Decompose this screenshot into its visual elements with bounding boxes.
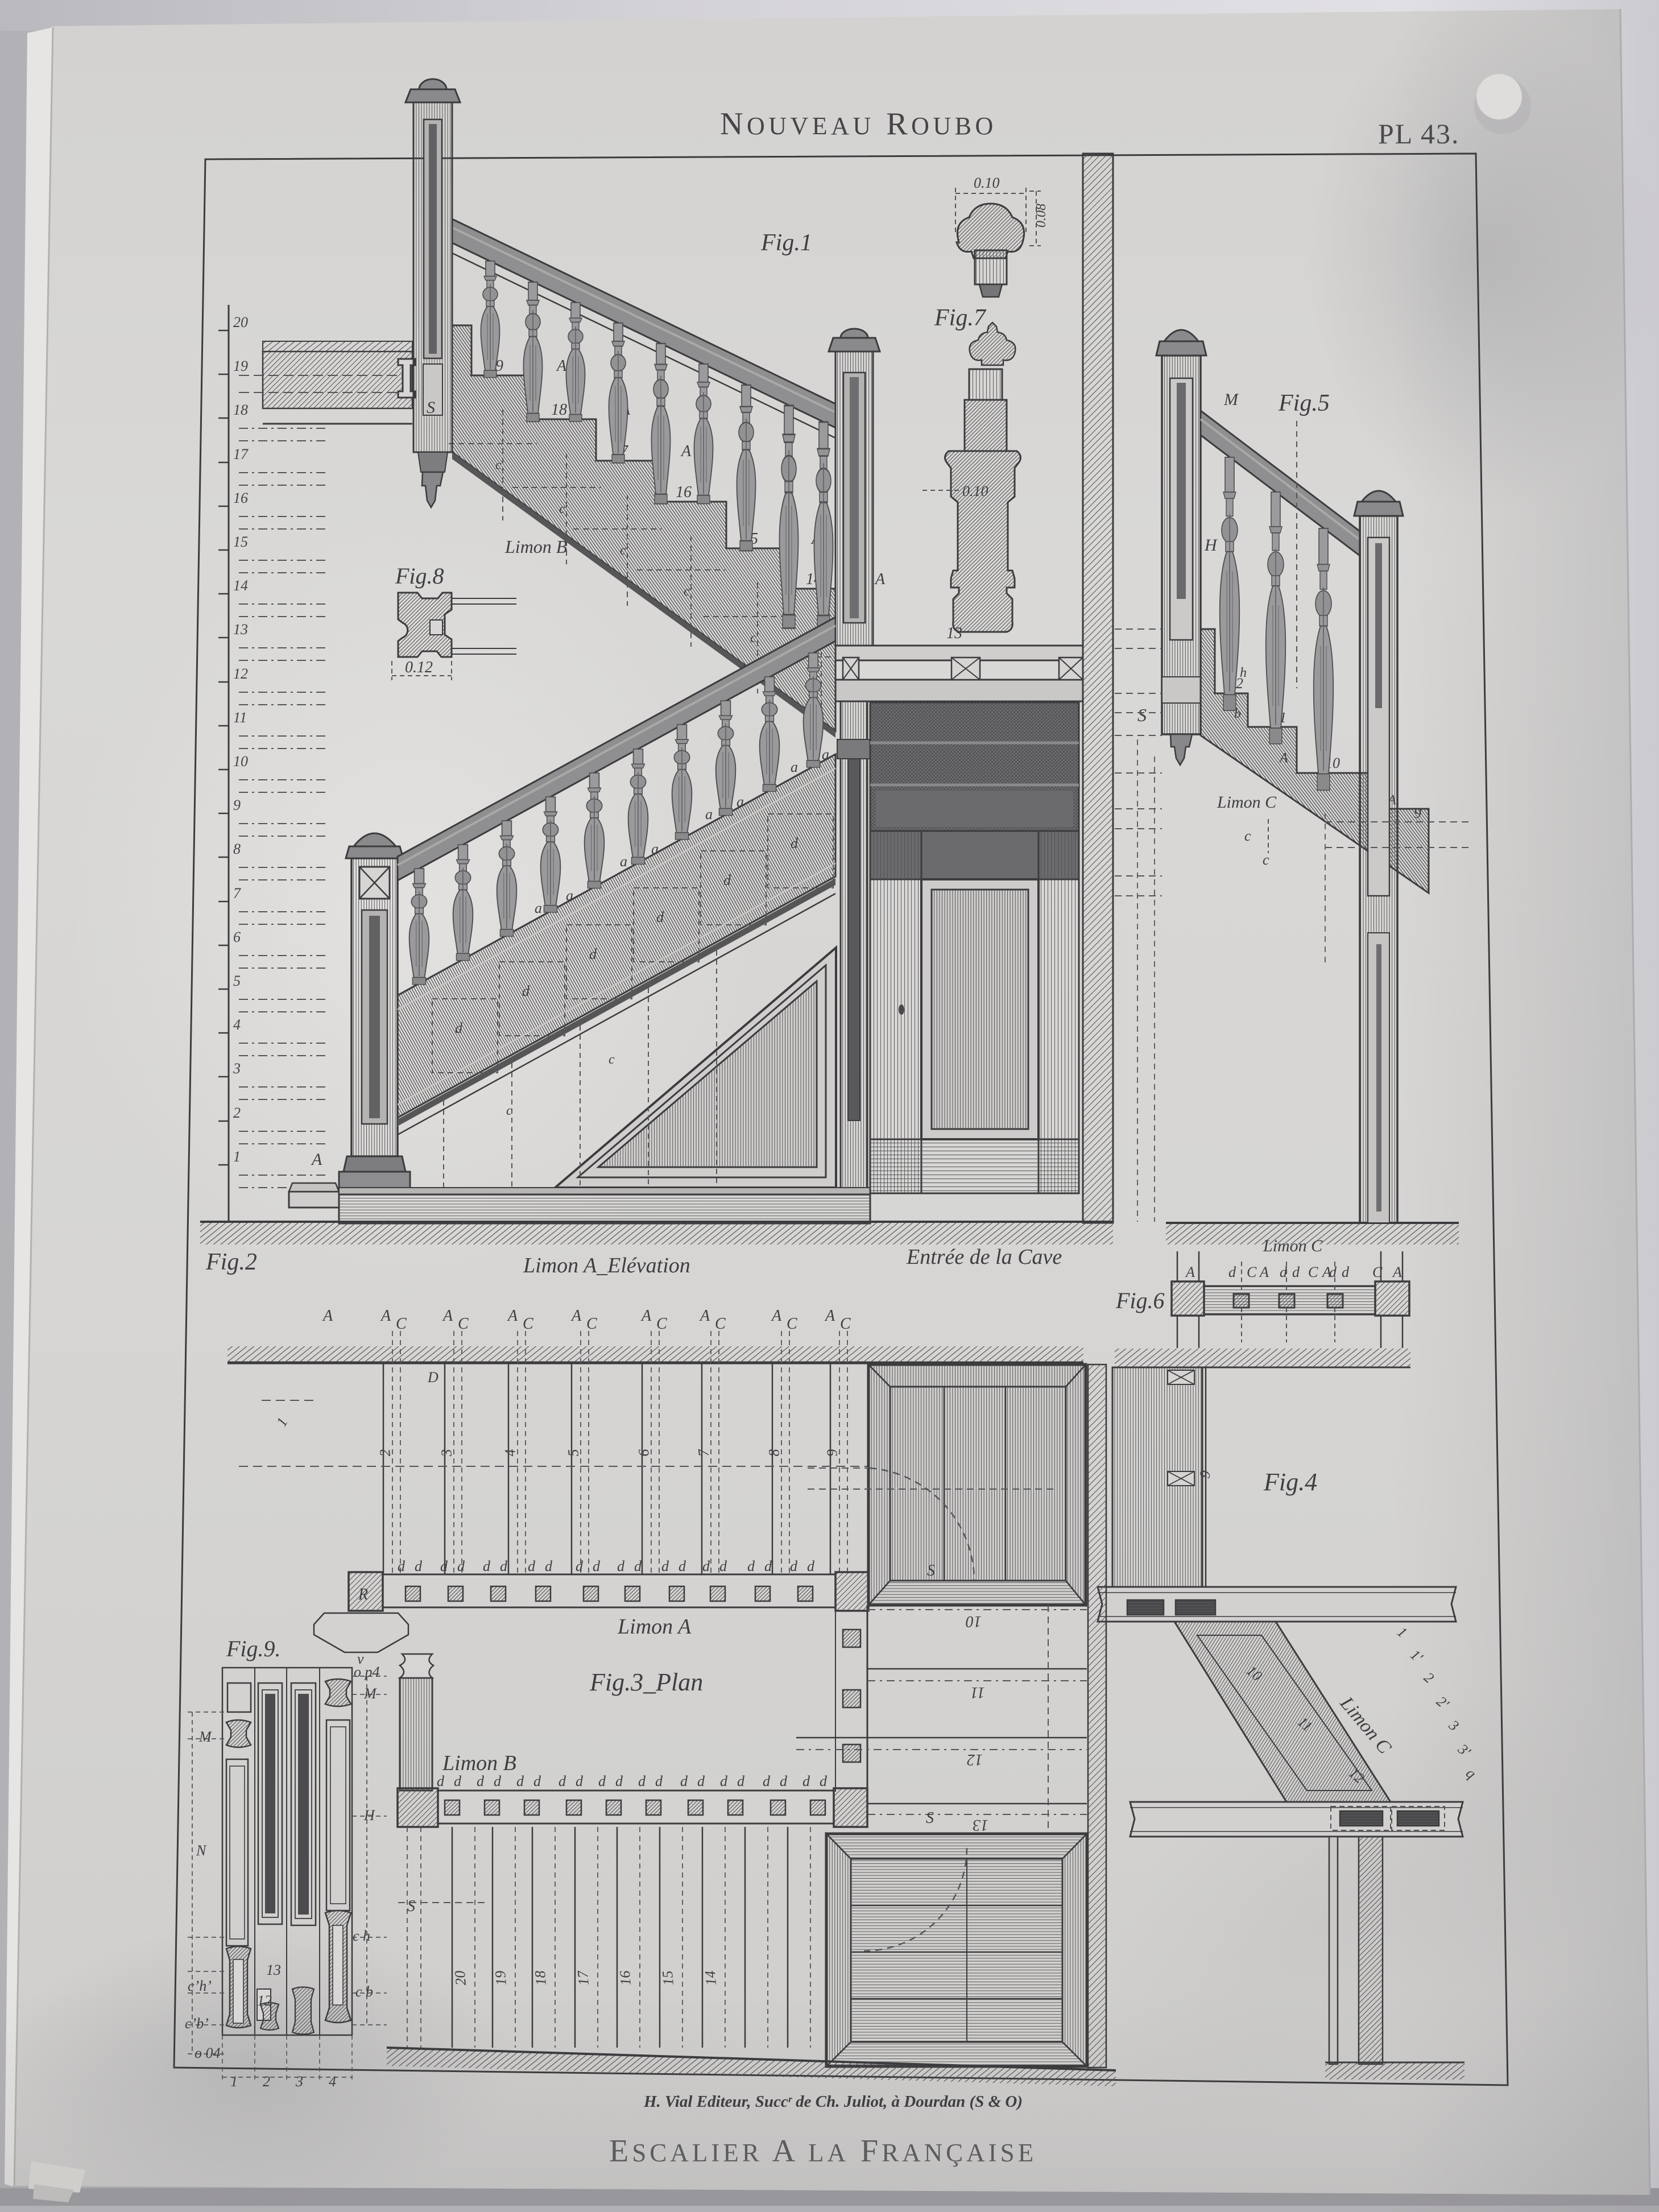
svg-text:d: d xyxy=(1228,1264,1236,1280)
svg-text:N: N xyxy=(196,1842,207,1859)
svg-text:Fig.3_Plan: Fig.3_Plan xyxy=(589,1668,703,1696)
svg-text:M: M xyxy=(363,1685,377,1702)
svg-text:13: 13 xyxy=(233,621,248,638)
svg-text:d: d xyxy=(589,946,597,962)
svg-text:c: c xyxy=(506,1103,512,1118)
svg-text:A: A xyxy=(874,570,886,588)
svg-text:ESCALIER A LA FRANÇAISE: ESCALIER A LA FRANÇAISE xyxy=(609,2134,1037,2169)
svg-text:A: A xyxy=(556,357,567,375)
svg-text:A: A xyxy=(680,443,692,460)
svg-text:Fig.6: Fig.6 xyxy=(1115,1288,1165,1313)
svg-text:4: 4 xyxy=(329,2073,336,2090)
svg-text:d: d xyxy=(680,1773,688,1789)
svg-text:A: A xyxy=(1392,1264,1402,1280)
svg-text:d: d xyxy=(747,1558,755,1574)
svg-text:Limon B: Limon B xyxy=(504,536,567,557)
svg-text:6: 6 xyxy=(635,1449,652,1457)
svg-text:A: A xyxy=(1259,1264,1269,1280)
svg-text:18: 18 xyxy=(233,402,248,418)
svg-text:c: c xyxy=(1263,851,1269,868)
svg-text:h: h xyxy=(1240,665,1247,680)
svg-text:d: d xyxy=(661,1558,669,1574)
svg-text:d: d xyxy=(415,1558,423,1574)
svg-text:Entrée de la Cave: Entrée de la Cave xyxy=(906,1245,1062,1269)
svg-text:d: d xyxy=(558,1773,566,1789)
svg-text:C: C xyxy=(787,1315,797,1333)
svg-text:14: 14 xyxy=(233,577,248,594)
svg-text:C: C xyxy=(840,1315,851,1333)
svg-text:C: C xyxy=(1308,1264,1318,1280)
svg-text:o p4: o p4 xyxy=(354,1664,380,1680)
svg-text:d: d xyxy=(634,1558,642,1574)
svg-text:d: d xyxy=(593,1558,601,1574)
svg-text:Fig.1: Fig.1 xyxy=(760,230,812,256)
svg-text:c’h’: c’h’ xyxy=(188,1978,212,1994)
svg-text:d: d xyxy=(545,1558,553,1574)
svg-text:d: d xyxy=(533,1773,541,1789)
svg-text:d: d xyxy=(1329,1264,1337,1280)
svg-text:S: S xyxy=(1137,705,1147,725)
svg-text:1: 1 xyxy=(233,1148,241,1165)
svg-text:d: d xyxy=(638,1773,646,1789)
svg-text:5: 5 xyxy=(233,973,241,989)
svg-text:Limon C: Limon C xyxy=(1217,793,1277,812)
svg-text:c h: c h xyxy=(353,1928,370,1944)
svg-text:18: 18 xyxy=(551,401,567,419)
svg-text:Limon A: Limon A xyxy=(617,1615,692,1639)
svg-text:15: 15 xyxy=(659,1970,677,1986)
svg-text:d: d xyxy=(1342,1264,1350,1280)
svg-text:2: 2 xyxy=(263,2073,270,2090)
svg-text:A: A xyxy=(380,1307,391,1325)
svg-text:d: d xyxy=(528,1558,536,1574)
svg-text:d: d xyxy=(477,1773,485,1789)
svg-text:D: D xyxy=(427,1369,438,1386)
svg-text:4: 4 xyxy=(233,1016,241,1033)
svg-text:20: 20 xyxy=(452,1970,469,1986)
svg-text:17: 17 xyxy=(574,1970,592,1986)
svg-text:d: d xyxy=(780,1773,788,1789)
svg-text:A: A xyxy=(570,1307,582,1325)
svg-text:9: 9 xyxy=(824,1449,841,1457)
svg-text:0.08: 0.08 xyxy=(1034,204,1049,228)
svg-text:8: 8 xyxy=(766,1449,783,1457)
svg-text:Fig.9.: Fig.9. xyxy=(226,1636,281,1661)
svg-text:S: S xyxy=(407,1897,415,1915)
svg-text:d: d xyxy=(820,1773,828,1789)
svg-text:14: 14 xyxy=(702,1970,719,1986)
svg-text:o 04: o 04 xyxy=(195,2045,221,2061)
svg-text:M: M xyxy=(198,1729,212,1745)
svg-text:NOUVEAU ROUBO: NOUVEAU ROUBO xyxy=(720,106,997,142)
svg-text:9: 9 xyxy=(233,797,241,813)
svg-text:d: d xyxy=(483,1558,491,1574)
svg-text:C: C xyxy=(1372,1264,1383,1280)
svg-text:0.10: 0.10 xyxy=(974,175,1000,191)
svg-text:a: a xyxy=(705,806,713,822)
svg-text:S: S xyxy=(927,1562,935,1580)
svg-text:C: C xyxy=(1247,1264,1257,1280)
svg-text:d: d xyxy=(437,1773,445,1789)
svg-text:20: 20 xyxy=(233,314,248,330)
svg-text:d: d xyxy=(455,1020,463,1036)
svg-text:d: d xyxy=(454,1773,462,1789)
svg-text:PL 43.: PL 43. xyxy=(1378,118,1460,150)
svg-text:R: R xyxy=(358,1586,368,1603)
svg-text:c: c xyxy=(495,458,502,473)
svg-text:d: d xyxy=(500,1558,508,1574)
svg-text:d: d xyxy=(807,1558,815,1574)
svg-text:d: d xyxy=(457,1558,465,1574)
svg-text:d: d xyxy=(764,1558,772,1574)
svg-text:d: d xyxy=(719,1558,727,1574)
svg-text:d: d xyxy=(398,1558,406,1574)
svg-text:c: c xyxy=(750,631,756,646)
svg-text:d: d xyxy=(791,835,799,851)
svg-text:c: c xyxy=(1244,828,1251,844)
svg-text:d: d xyxy=(763,1773,771,1789)
svg-text:C: C xyxy=(458,1315,469,1333)
svg-text:2: 2 xyxy=(377,1449,394,1457)
svg-text:d: d xyxy=(697,1773,705,1789)
svg-text:A: A xyxy=(1185,1264,1195,1280)
svg-text:d: d xyxy=(617,1558,625,1574)
svg-text:d: d xyxy=(494,1773,502,1789)
svg-text:C: C xyxy=(715,1315,726,1333)
svg-text:c: c xyxy=(620,543,626,558)
svg-text:S: S xyxy=(427,398,435,417)
svg-text:A: A xyxy=(699,1307,710,1325)
svg-text:a: a xyxy=(651,841,659,857)
svg-text:12: 12 xyxy=(257,1992,272,2009)
svg-text:d: d xyxy=(679,1558,686,1574)
svg-text:4: 4 xyxy=(502,1449,519,1457)
svg-text:A: A xyxy=(1279,751,1288,766)
svg-text:Limon C: Limon C xyxy=(1263,1237,1323,1255)
svg-text:Limon B: Limon B xyxy=(442,1751,516,1775)
svg-text:17: 17 xyxy=(233,446,249,462)
svg-text:c: c xyxy=(559,502,565,516)
svg-text:d: d xyxy=(440,1558,448,1574)
svg-text:15: 15 xyxy=(233,534,248,550)
svg-text:2: 2 xyxy=(233,1105,241,1121)
svg-text:c’b’: c’b’ xyxy=(185,2015,209,2032)
svg-text:Fig.8: Fig.8 xyxy=(395,563,444,589)
svg-text:d: d xyxy=(702,1558,710,1574)
svg-text:A: A xyxy=(322,1307,333,1325)
svg-text:c: c xyxy=(609,1052,615,1067)
svg-text:Fig.5: Fig.5 xyxy=(1278,390,1330,416)
svg-text:H: H xyxy=(363,1807,375,1824)
svg-text:Fig.7: Fig.7 xyxy=(934,305,987,331)
svg-text:3: 3 xyxy=(295,2073,303,2090)
svg-text:C: C xyxy=(656,1315,667,1333)
svg-text:d: d xyxy=(576,1558,584,1574)
svg-text:d: d xyxy=(655,1773,663,1789)
svg-text:7: 7 xyxy=(233,885,241,902)
svg-text:1: 1 xyxy=(230,2073,238,2090)
svg-text:6: 6 xyxy=(233,929,241,945)
svg-text:12: 12 xyxy=(967,1751,983,1768)
svg-text:c: c xyxy=(684,584,690,599)
svg-text:d: d xyxy=(723,872,731,888)
svg-text:0.12: 0.12 xyxy=(405,659,433,676)
svg-text:d: d xyxy=(720,1773,728,1789)
svg-text:3: 3 xyxy=(438,1449,455,1458)
svg-text:a: a xyxy=(535,900,542,916)
svg-text:18: 18 xyxy=(532,1970,549,1986)
svg-text:A: A xyxy=(824,1307,835,1325)
svg-text:a: a xyxy=(737,793,744,810)
svg-text:d: d xyxy=(1292,1264,1300,1280)
svg-text:19: 19 xyxy=(233,358,248,374)
svg-text:d: d xyxy=(598,1773,606,1789)
svg-text:H. Vial Editeur, Succʳ de Ch.: H. Vial Editeur, Succʳ de Ch. Juliot, à … xyxy=(643,2093,1023,2111)
svg-text:C: C xyxy=(523,1315,533,1333)
svg-text:19: 19 xyxy=(492,1970,510,1986)
svg-text:16: 16 xyxy=(617,1970,634,1986)
svg-text:d: d xyxy=(1280,1264,1288,1280)
svg-text:0.10: 0.10 xyxy=(962,483,988,499)
svg-text:C: C xyxy=(396,1315,407,1333)
svg-text:H: H xyxy=(1204,536,1218,555)
svg-text:M: M xyxy=(1223,390,1239,409)
svg-text:d: d xyxy=(576,1773,584,1789)
svg-text:d: d xyxy=(656,909,664,925)
svg-text:A: A xyxy=(311,1150,322,1169)
svg-text:11: 11 xyxy=(233,709,247,726)
svg-text:11: 11 xyxy=(970,1684,985,1701)
svg-text:a: a xyxy=(822,746,829,763)
svg-text:Fig.4: Fig.4 xyxy=(1263,1468,1317,1496)
svg-text:d: d xyxy=(802,1773,810,1789)
svg-text:d: d xyxy=(790,1558,798,1574)
svg-text:10: 10 xyxy=(966,1613,982,1630)
svg-text:d: d xyxy=(522,983,530,999)
svg-text:A: A xyxy=(442,1307,453,1325)
svg-text:10: 10 xyxy=(233,753,248,770)
svg-text:8: 8 xyxy=(233,841,241,857)
svg-text:c b: c b xyxy=(355,1983,373,2000)
svg-text:16: 16 xyxy=(676,483,692,501)
svg-text:C: C xyxy=(586,1315,597,1333)
svg-text:A: A xyxy=(771,1307,782,1325)
svg-text:Fig.2: Fig.2 xyxy=(205,1249,257,1275)
svg-text:A: A xyxy=(507,1307,518,1325)
svg-text:13: 13 xyxy=(973,1816,988,1834)
svg-text:S: S xyxy=(926,1809,934,1827)
svg-text:A: A xyxy=(640,1307,652,1325)
svg-text:5: 5 xyxy=(565,1449,582,1457)
svg-text:a: a xyxy=(791,759,798,775)
svg-text:Limon A_Elévation: Limon A_Elévation xyxy=(523,1254,690,1277)
svg-text:a: a xyxy=(566,887,573,904)
svg-text:d: d xyxy=(516,1773,524,1789)
svg-text:12: 12 xyxy=(233,665,248,682)
svg-text:9: 9 xyxy=(1414,805,1421,821)
svg-text:13: 13 xyxy=(266,1962,281,1978)
svg-text:d: d xyxy=(615,1773,623,1789)
svg-text:a: a xyxy=(620,853,627,870)
svg-text:16: 16 xyxy=(233,490,248,506)
svg-text:d: d xyxy=(737,1773,745,1789)
svg-text:3: 3 xyxy=(233,1060,241,1077)
